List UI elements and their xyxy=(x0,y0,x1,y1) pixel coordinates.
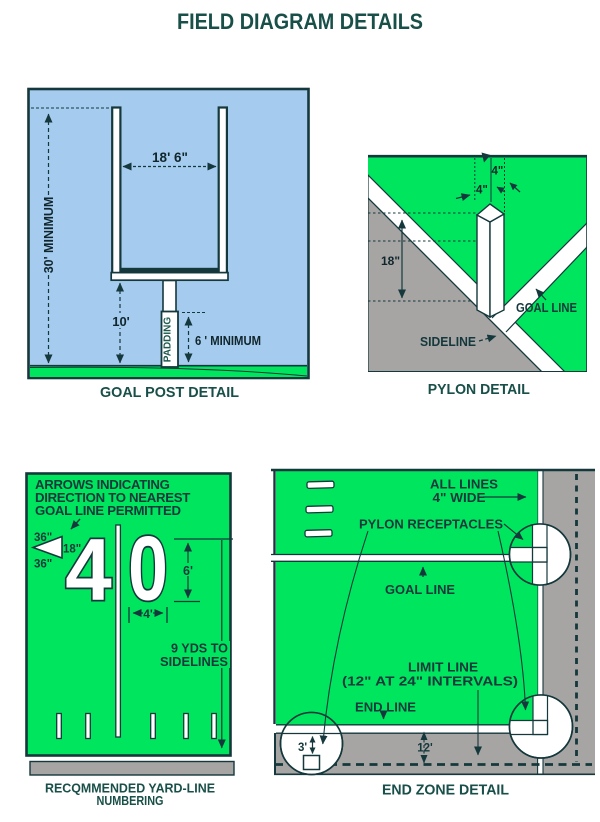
svg-text:3': 3' xyxy=(298,742,307,754)
svg-text:GOAL LINE: GOAL LINE xyxy=(385,582,455,597)
svg-text:12': 12' xyxy=(417,743,433,755)
svg-text:END ZONE DETAIL: END ZONE DETAIL xyxy=(382,782,509,799)
svg-text:(12" AT 24" INTERVALS): (12" AT 24" INTERVALS) xyxy=(342,674,518,689)
svg-text:LIMIT LINE: LIMIT LINE xyxy=(408,660,478,675)
svg-text:END LINE: END LINE xyxy=(355,700,416,715)
svg-text:PYLON RECEPTACLES: PYLON RECEPTACLES xyxy=(359,517,503,532)
svg-text:4" WIDE: 4" WIDE xyxy=(433,490,486,505)
